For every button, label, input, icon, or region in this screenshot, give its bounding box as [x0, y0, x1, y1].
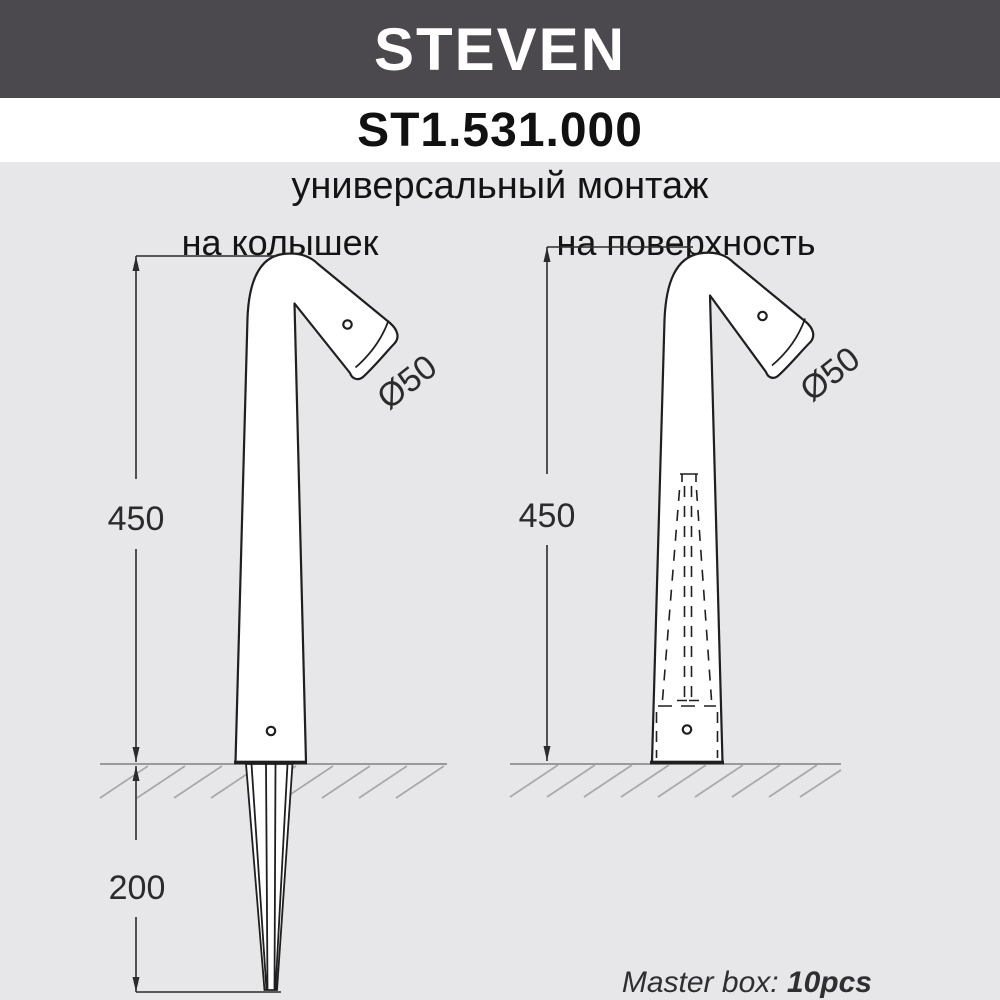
stake-mount-drawing: 450 200 Ø50	[100, 254, 447, 992]
spike-dimension-label: 200	[109, 869, 166, 907]
lamp-outline	[652, 253, 813, 762]
arrow-up-icon	[544, 247, 551, 262]
arrow-up-icon	[133, 256, 140, 271]
post-screw-icon	[683, 725, 691, 733]
height-dimension-label: 450	[519, 497, 576, 535]
arrow-up-icon	[133, 766, 140, 781]
master-box-value: 10pcs	[787, 966, 872, 999]
height-dimension-label: 450	[108, 500, 165, 538]
head-screw-icon	[758, 312, 766, 320]
ground-spike	[246, 764, 293, 990]
product-spec-sheet: STEVEN ST1.531.000 универсальный монтаж …	[0, 0, 1000, 1000]
arrow-down-icon	[133, 747, 140, 762]
ground-hatching	[510, 765, 841, 797]
lamp-outline	[236, 254, 398, 762]
surface-mount-drawing: 450 Ø50	[510, 247, 867, 797]
master-box-label: Master box:	[622, 966, 787, 999]
head-screw-icon	[343, 320, 351, 328]
technical-drawing: 450 200 Ø50	[0, 0, 1000, 1000]
arrow-down-icon	[544, 746, 551, 761]
master-box-note: Master box: 10pcs	[622, 966, 872, 1000]
arrow-down-icon	[133, 977, 140, 992]
post-screw-icon	[267, 727, 275, 735]
